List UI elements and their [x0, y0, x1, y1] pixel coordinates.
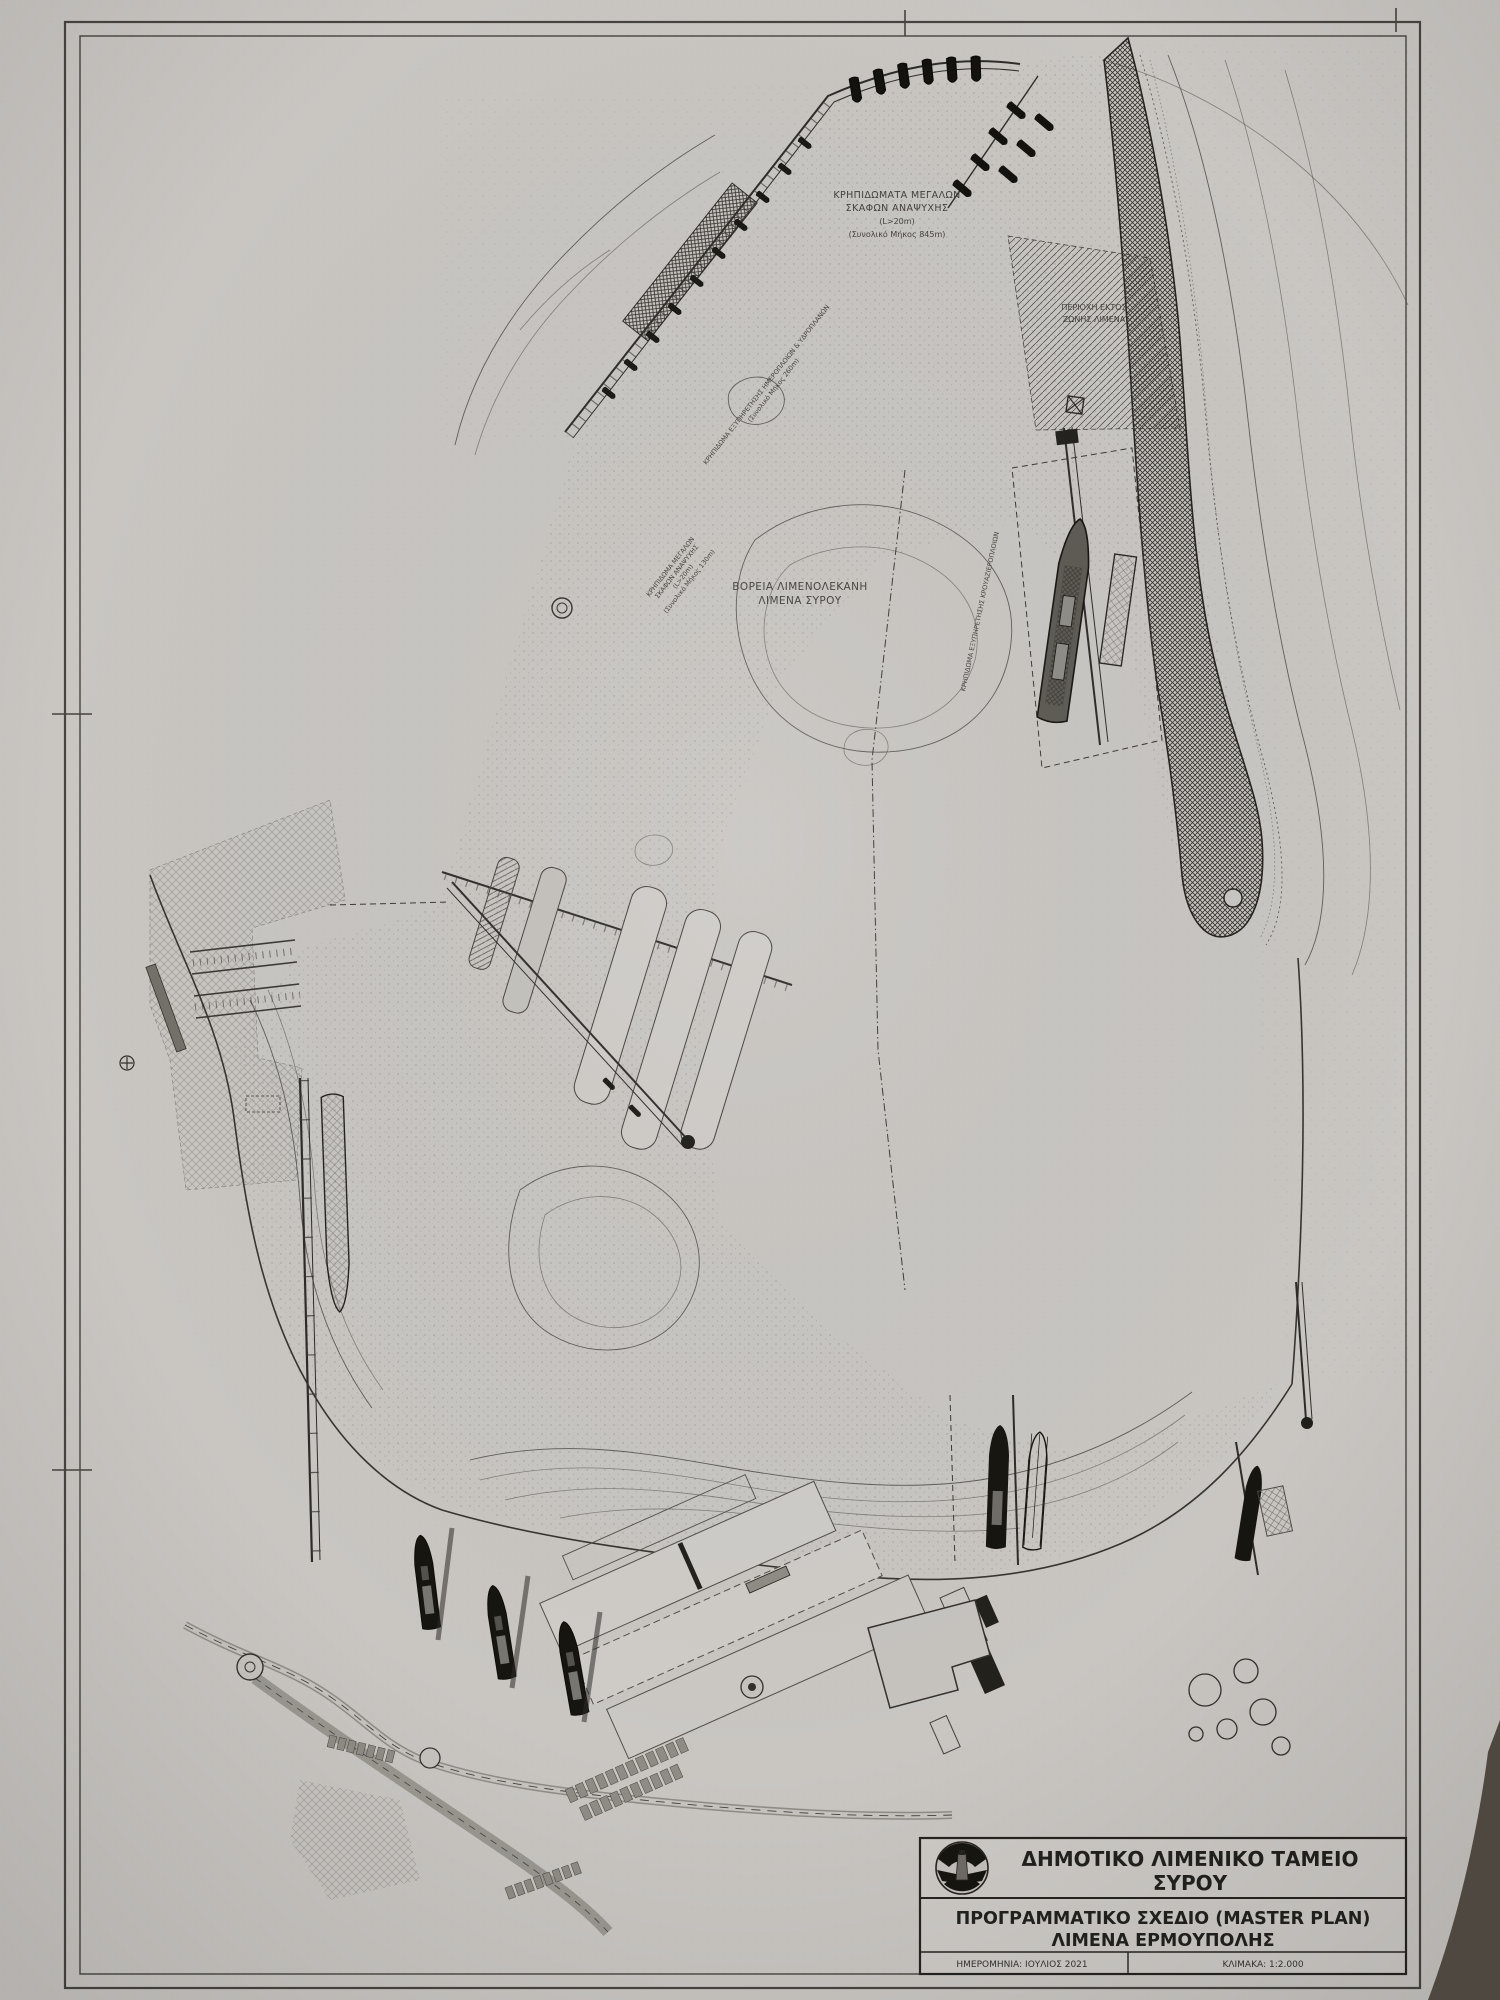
photo-vignette [0, 0, 1500, 2000]
master-plan-drawing: ΚΡΗΠΙΔΩΜΑΤΑ ΜΕΓΑΛΩΝ ΣΚΑΦΩΝ ΑΝΑΨΥΧΗΣ (L>2… [0, 0, 1500, 2000]
photo-of-plan-sheet: ΚΡΗΠΙΔΩΜΑΤΑ ΜΕΓΑΛΩΝ ΣΚΑΦΩΝ ΑΝΑΨΥΧΗΣ (L>2… [0, 0, 1500, 2000]
